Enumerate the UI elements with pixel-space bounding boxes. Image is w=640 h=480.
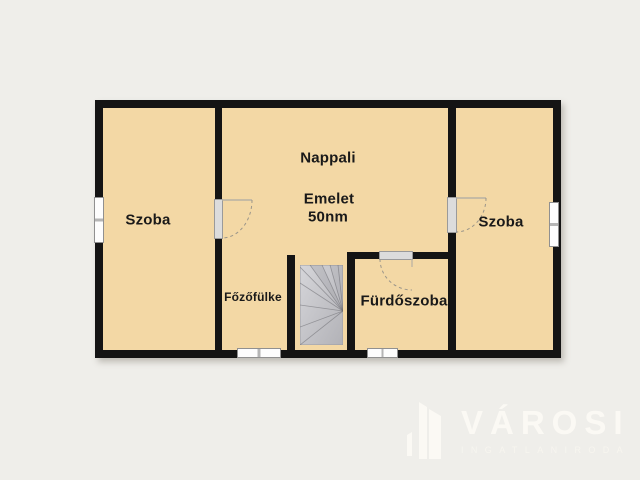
floorplan: Szoba Nappali Emelet 50nm Szoba Főzőfülk… (95, 100, 561, 358)
label-room-right: Szoba (478, 214, 523, 231)
door-swing-left-room (222, 199, 258, 241)
label-area: 50nm (308, 209, 348, 226)
window-bottom-bathroom (367, 348, 398, 358)
label-kitchenette: Főzőfülke (224, 290, 282, 304)
window-right (549, 202, 559, 247)
floorplan-image: Szoba Nappali Emelet 50nm Szoba Főzőfülk… (0, 0, 640, 480)
label-room-left: Szoba (125, 212, 170, 229)
window-bottom-kitchenette (237, 348, 281, 358)
wall-stairs-bathroom (347, 252, 355, 350)
staircase (300, 265, 343, 345)
window-left (94, 197, 104, 243)
label-floor: Emelet (304, 191, 354, 208)
door-swing-bathroom (380, 259, 414, 293)
label-bathroom: Fürdőszoba (361, 293, 448, 310)
brand-tagline: INGATLANIRODA (461, 445, 630, 455)
building-icon (405, 399, 447, 461)
label-living-room: Nappali (300, 150, 356, 167)
agency-watermark: VÁROSI INGATLANIRODA (405, 398, 625, 462)
brand-name: VÁROSI (461, 406, 630, 439)
wall-kitchenette-stairs (287, 255, 295, 350)
